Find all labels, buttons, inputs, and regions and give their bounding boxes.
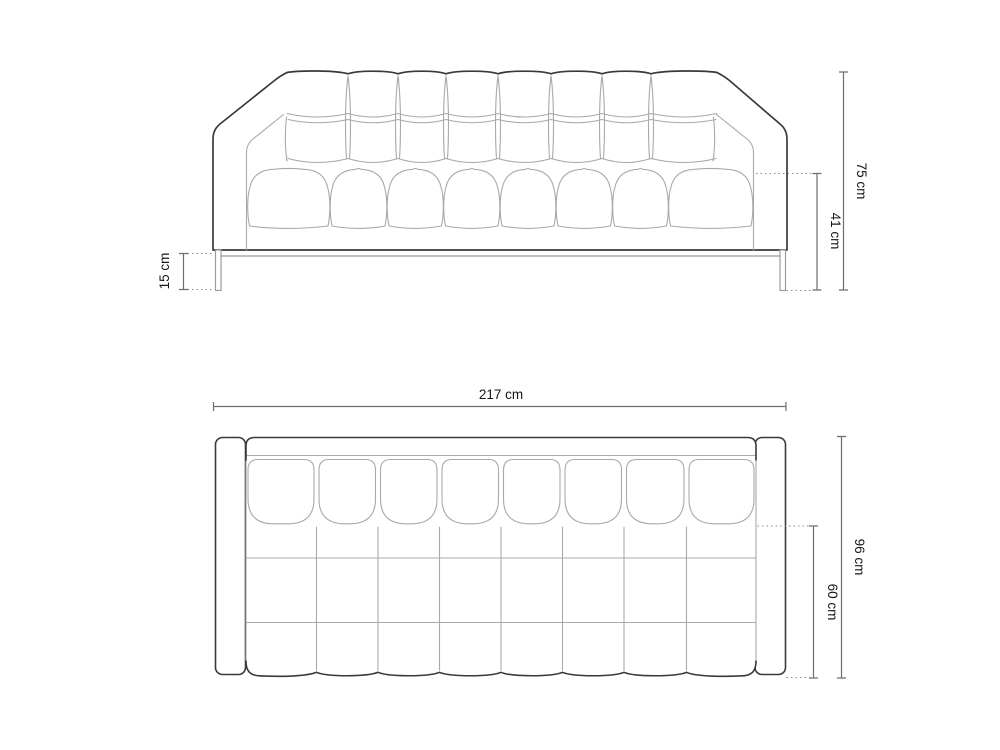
- front-left-leg: [216, 250, 222, 291]
- overall-width-label: 217 cm: [479, 387, 523, 402]
- top-left-armrest: [216, 438, 246, 675]
- leg-height-label: 15 cm: [157, 253, 172, 290]
- dimension-leg-height: 15 cm: [157, 253, 215, 290]
- overall-height-label: 75 cm: [854, 163, 869, 200]
- front-sofa-legs: [216, 250, 786, 291]
- dimension-overall-depth: 96 cm: [837, 437, 867, 679]
- top-right-armrest: [755, 438, 786, 675]
- seat-height-label: 41 cm: [828, 213, 843, 250]
- top-view: 217 cm: [214, 387, 868, 678]
- seat-depth-label: 60 cm: [825, 584, 840, 621]
- front-view: 75 cm 41 cm 15 cm: [157, 71, 869, 291]
- dimension-overall-width: 217 cm: [214, 387, 787, 411]
- front-right-leg: [780, 250, 786, 291]
- sofa-dimension-diagram-page: 75 cm 41 cm 15 cm 217 cm: [0, 0, 1000, 750]
- sofa-dimension-diagram: 75 cm 41 cm 15 cm 217 cm: [0, 0, 1000, 750]
- overall-depth-label: 96 cm: [852, 539, 867, 576]
- dimension-overall-height: 75 cm: [839, 72, 869, 290]
